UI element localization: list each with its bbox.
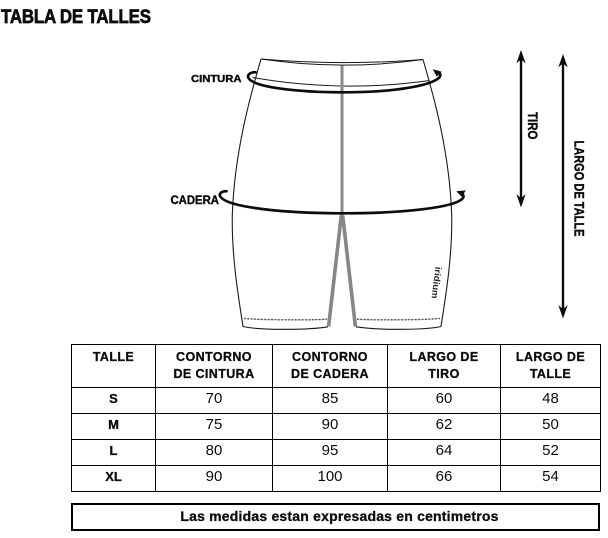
svg-text:iridium: iridium (430, 266, 444, 299)
svg-text:LARGO DE TALLE: LARGO DE TALLE (572, 141, 587, 237)
svg-text:CINTURA: CINTURA (191, 73, 242, 85)
svg-text:TIRO: TIRO (525, 112, 540, 140)
svg-text:CADERA: CADERA (171, 193, 220, 207)
